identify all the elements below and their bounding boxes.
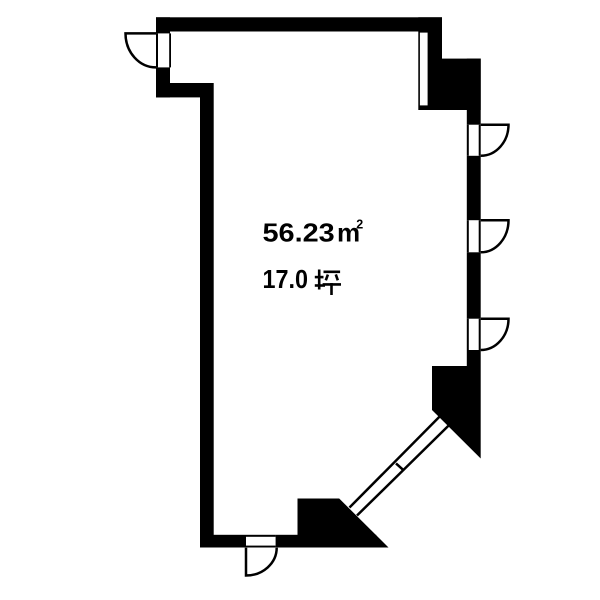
svg-text:17.0: 17.0 (263, 264, 309, 294)
svg-text:2: 2 (356, 217, 363, 231)
svg-text:56.23: 56.23 (263, 218, 335, 248)
